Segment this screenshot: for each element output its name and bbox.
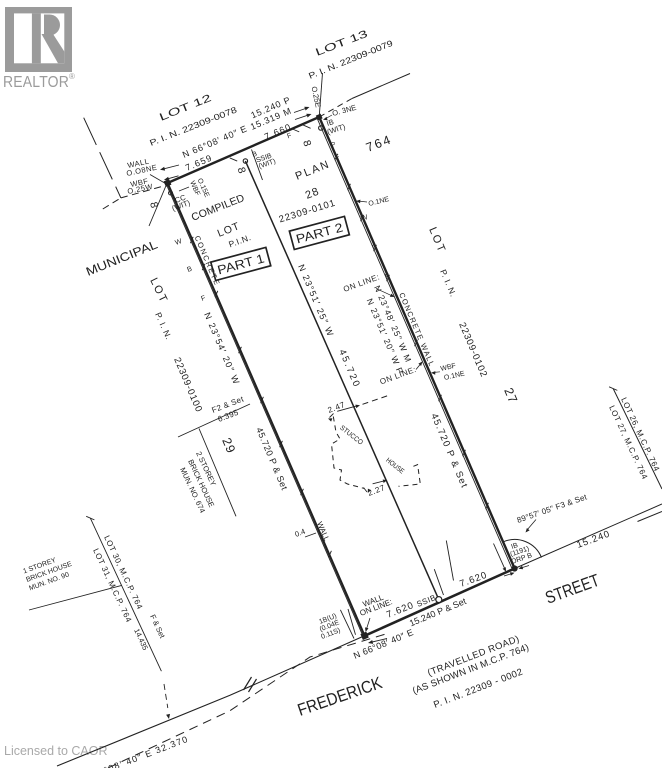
svg-text:Licensed to CAOR: Licensed to CAOR <box>4 744 108 758</box>
svg-text:REALTOR: REALTOR <box>3 74 69 91</box>
svg-text:®: ® <box>69 72 75 81</box>
